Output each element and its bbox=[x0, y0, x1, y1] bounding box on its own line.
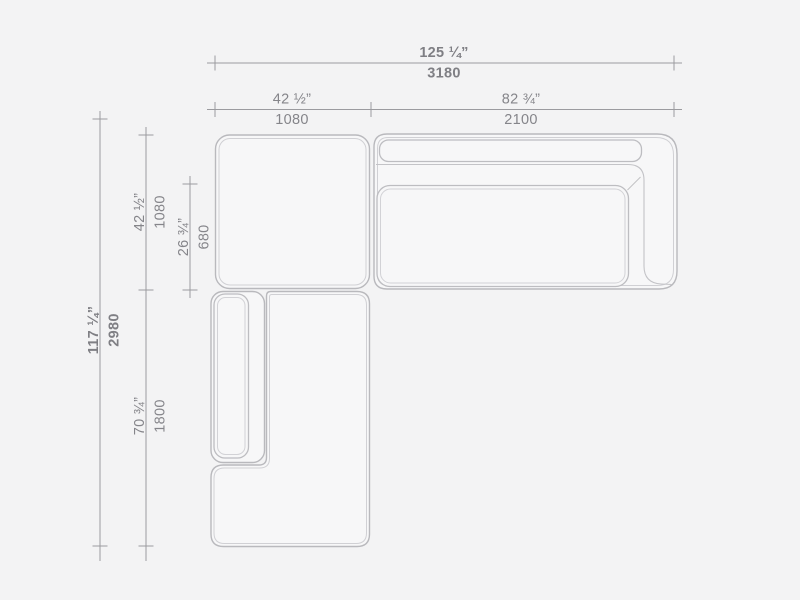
sofa-dimension-drawing: 125 ¼” 3180 42 ½” 1080 82 ¾” 2100 117 ¼”… bbox=[0, 0, 800, 600]
drawing-canvas: 125 ¼” 3180 42 ½” 1080 82 ¾” 2100 117 ¼”… bbox=[0, 0, 800, 600]
armrest-cushion bbox=[214, 294, 249, 458]
dim-label-inches: 125 ¼” bbox=[419, 45, 468, 61]
dim-overall-width: 125 ¼” 3180 bbox=[207, 45, 682, 82]
sofa-module bbox=[374, 134, 677, 289]
dim-label-inches: 26 ¾” bbox=[176, 218, 192, 257]
dim-label-inches: 70 ¾” bbox=[132, 397, 148, 436]
seat-cushion bbox=[377, 186, 629, 287]
armrest-module bbox=[211, 292, 265, 463]
dim-label-inches: 42 ½” bbox=[273, 92, 312, 108]
backrest-cushion bbox=[380, 140, 642, 162]
chaise-module bbox=[211, 292, 370, 547]
dimension-lines: 125 ¼” 3180 42 ½” 1080 82 ¾” 2100 117 ¼”… bbox=[86, 45, 682, 561]
dim-label-inches: 117 ¼” bbox=[86, 306, 102, 355]
dim-label-mm: 680 bbox=[197, 224, 213, 249]
ottoman-outline bbox=[216, 135, 370, 289]
dim-label-mm: 1080 bbox=[153, 195, 169, 228]
dim-seat-depth: 26 ¾” 680 bbox=[176, 176, 213, 298]
dim-overall-depth: 117 ¼” 2980 bbox=[86, 111, 123, 561]
ottoman-module bbox=[216, 135, 370, 289]
dim-label-mm: 3180 bbox=[427, 66, 460, 82]
dim-label-inches: 42 ½” bbox=[132, 193, 148, 232]
dim-label-mm: 2100 bbox=[504, 112, 537, 128]
dim-label-mm: 2980 bbox=[107, 313, 123, 346]
dim-label-mm: 1080 bbox=[275, 112, 308, 128]
sofa-plan bbox=[211, 134, 677, 547]
dim-label-inches: 82 ¾” bbox=[502, 92, 541, 108]
dim-split-depth-column: 42 ½” 1080 70 ¾” 1800 bbox=[132, 127, 169, 561]
dim-split-width-row: 42 ½” 1080 82 ¾” 2100 bbox=[207, 92, 682, 129]
dim-label-mm: 1800 bbox=[153, 399, 169, 432]
